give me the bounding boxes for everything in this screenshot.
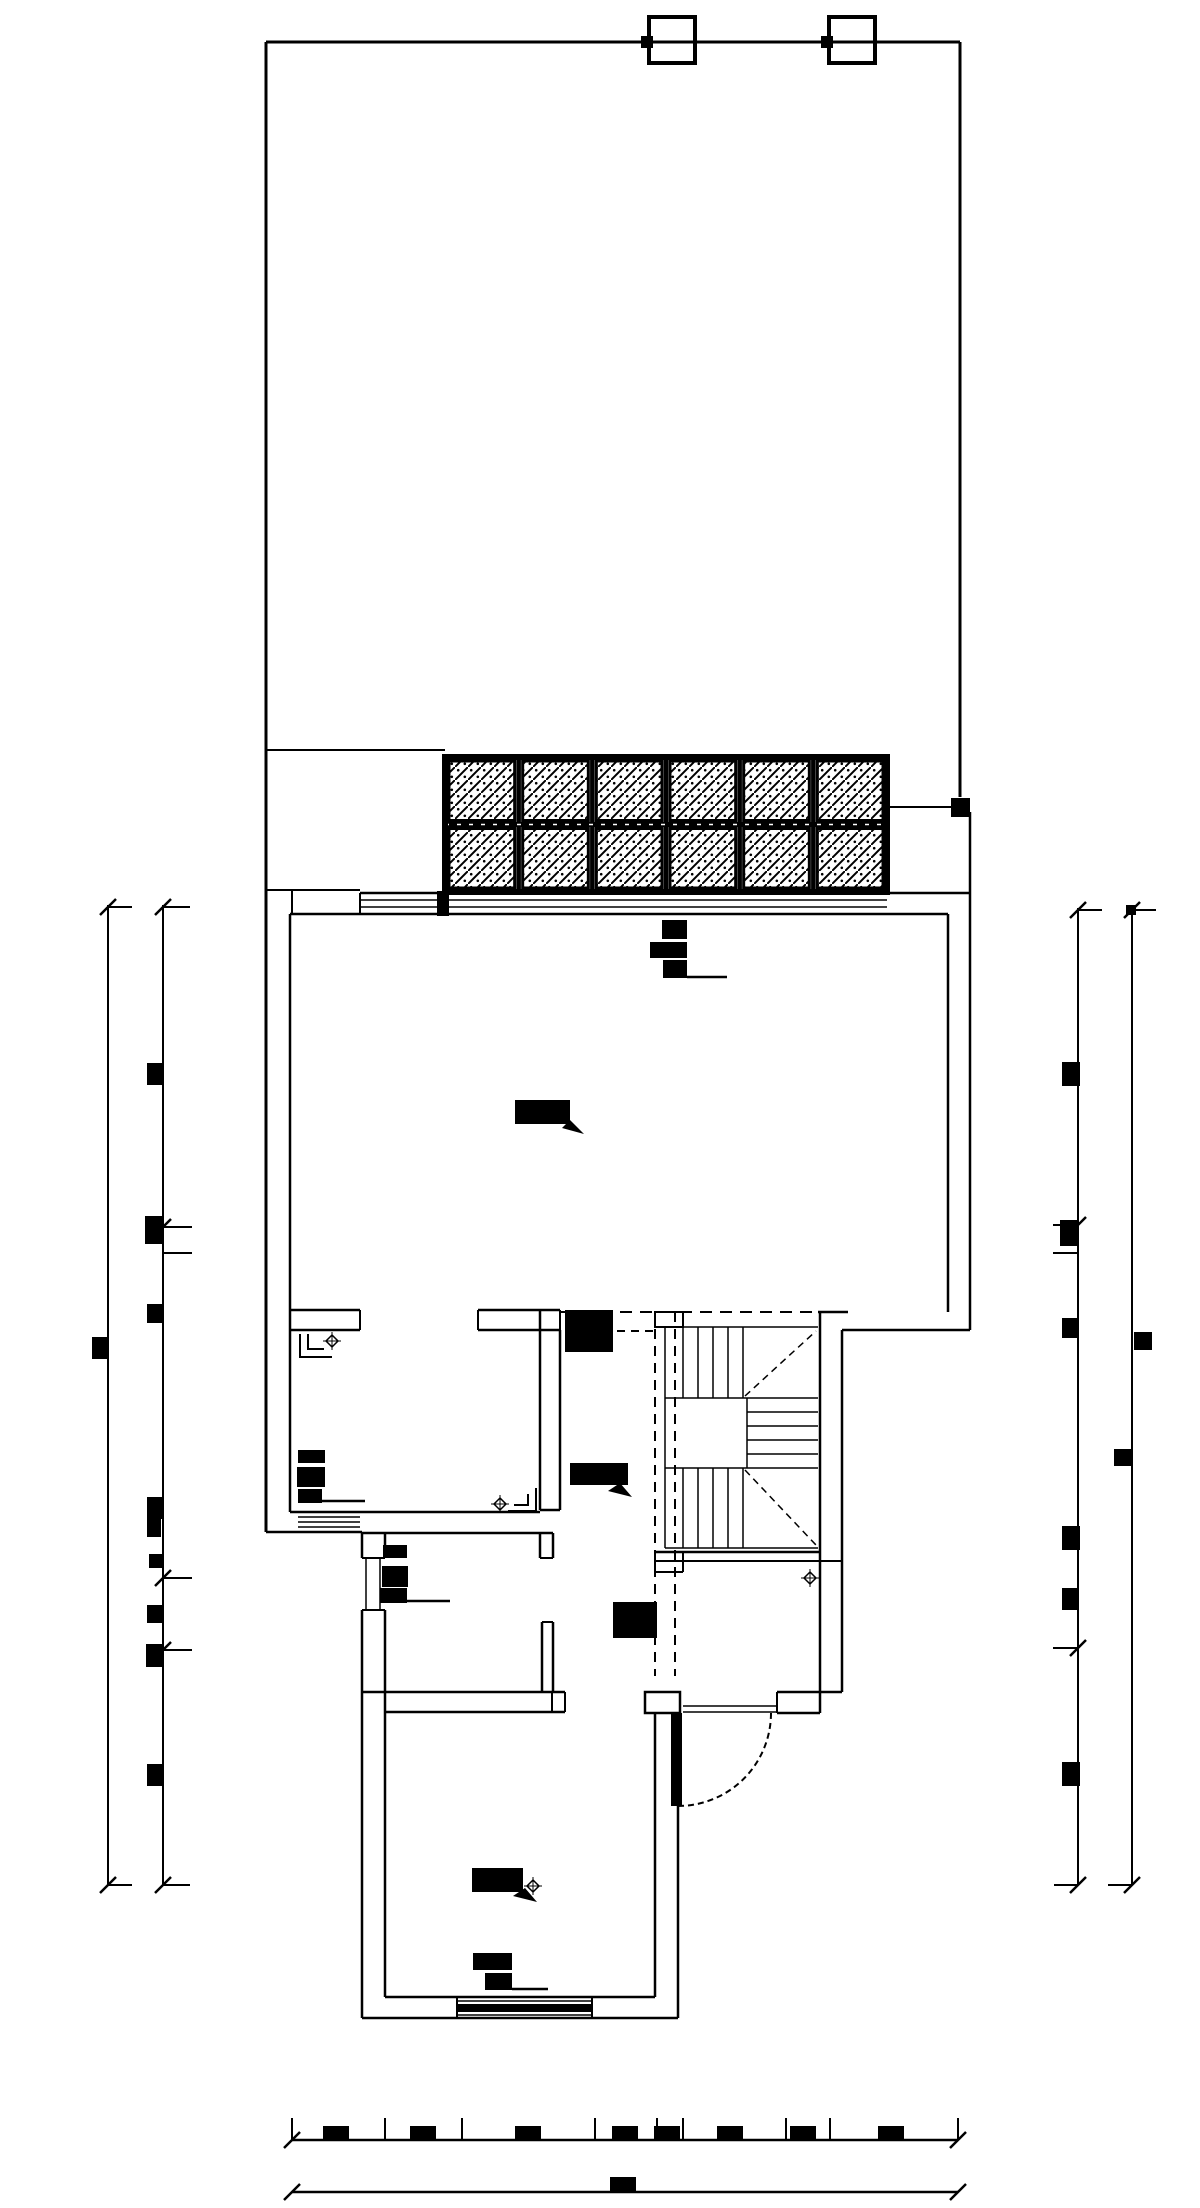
floor-plan-sheet bbox=[0, 0, 1200, 2208]
pergola-grid bbox=[445, 757, 887, 892]
floor-plan-svg bbox=[0, 0, 1200, 2208]
